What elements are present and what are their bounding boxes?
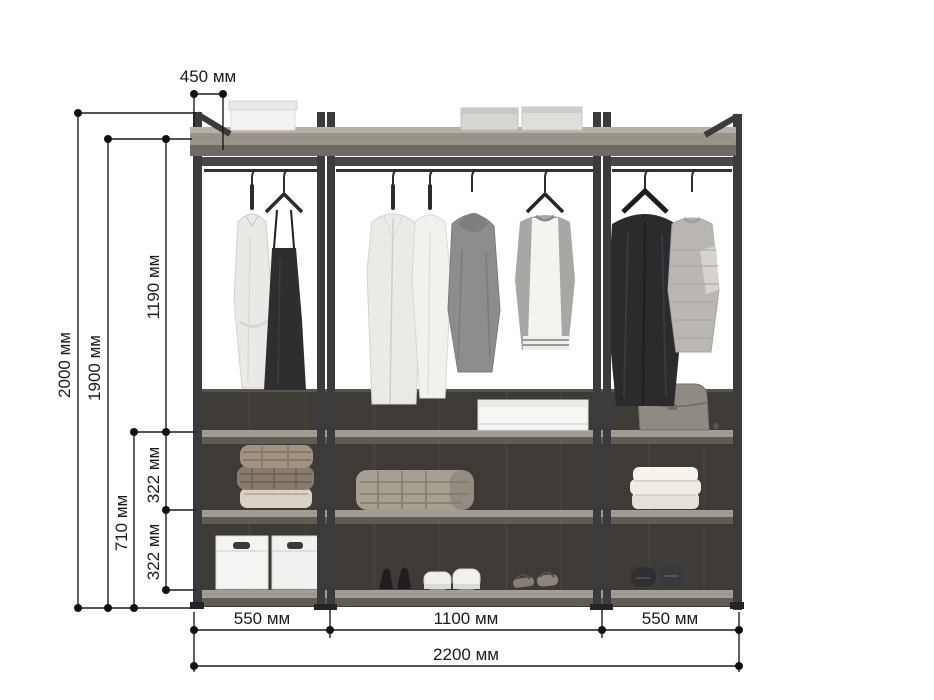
dimension-hanging-height-1190 [130, 135, 196, 436]
garments [234, 184, 719, 406]
label-left-width: 550 мм [234, 609, 290, 628]
wardrobe-dimension-diagram: 450 мм 2000 мм 1900 мм 1190 мм 710 мм 32… [0, 0, 934, 700]
garment-varsity-jacket [515, 194, 575, 350]
top-crossbars [198, 157, 736, 172]
shelf-upper [198, 430, 742, 444]
label-total-height: 2000 мм [55, 332, 74, 398]
post-mid-left-b [327, 112, 335, 610]
top-shelf-items [229, 101, 582, 130]
fabric-box-1 [461, 108, 518, 130]
diagram-canvas: 450 мм 2000 мм 1900 мм 1190 мм 710 мм 32… [0, 0, 934, 700]
label-shelf-gap-upper: 322 мм [144, 447, 163, 503]
label-center-width: 1100 мм [434, 609, 499, 628]
dimension-shelf-gap-upper-322 [162, 432, 196, 514]
label-right-width: 550 мм [642, 609, 698, 628]
post-mid-left-a [317, 112, 325, 610]
post-mid-right-a [593, 112, 601, 610]
hanging-rod-left [204, 169, 318, 172]
hanging-rod-center [336, 169, 594, 172]
folded-blanket [356, 470, 474, 510]
post-right [733, 114, 742, 610]
dimension-shelf-gap-lower-322 [162, 510, 196, 594]
storage-box-left-2 [272, 536, 318, 589]
folded-clothes-stack [237, 445, 314, 508]
shelf-middle [198, 510, 742, 524]
shelf-bottom [198, 590, 742, 606]
white-box-top [229, 101, 297, 130]
post-left [193, 112, 202, 608]
garment-knit-sweater [668, 218, 719, 352]
garment-gray-coat [448, 213, 500, 372]
label-frame-height: 1900 мм [85, 335, 104, 401]
label-depth: 450 мм [180, 67, 236, 86]
fabric-box-2 [522, 107, 582, 130]
dimension-lower-height-710 [130, 428, 138, 612]
hanging-rod-right [612, 169, 732, 172]
label-lower-height: 710 мм [112, 495, 131, 551]
folded-shirts [630, 467, 701, 509]
top-shelf [190, 127, 736, 156]
garment-white-shirt [412, 184, 451, 398]
label-total-width: 2200 мм [433, 645, 499, 664]
small-accessory [713, 423, 719, 429]
label-shelf-gap-lower: 322 мм [144, 524, 163, 580]
label-hanging-height: 1190 мм [144, 255, 163, 320]
garment-black-dress [264, 194, 306, 390]
flat-box [478, 400, 588, 430]
post-mid-right-b [603, 112, 611, 610]
storage-box-left-1 [216, 536, 268, 589]
